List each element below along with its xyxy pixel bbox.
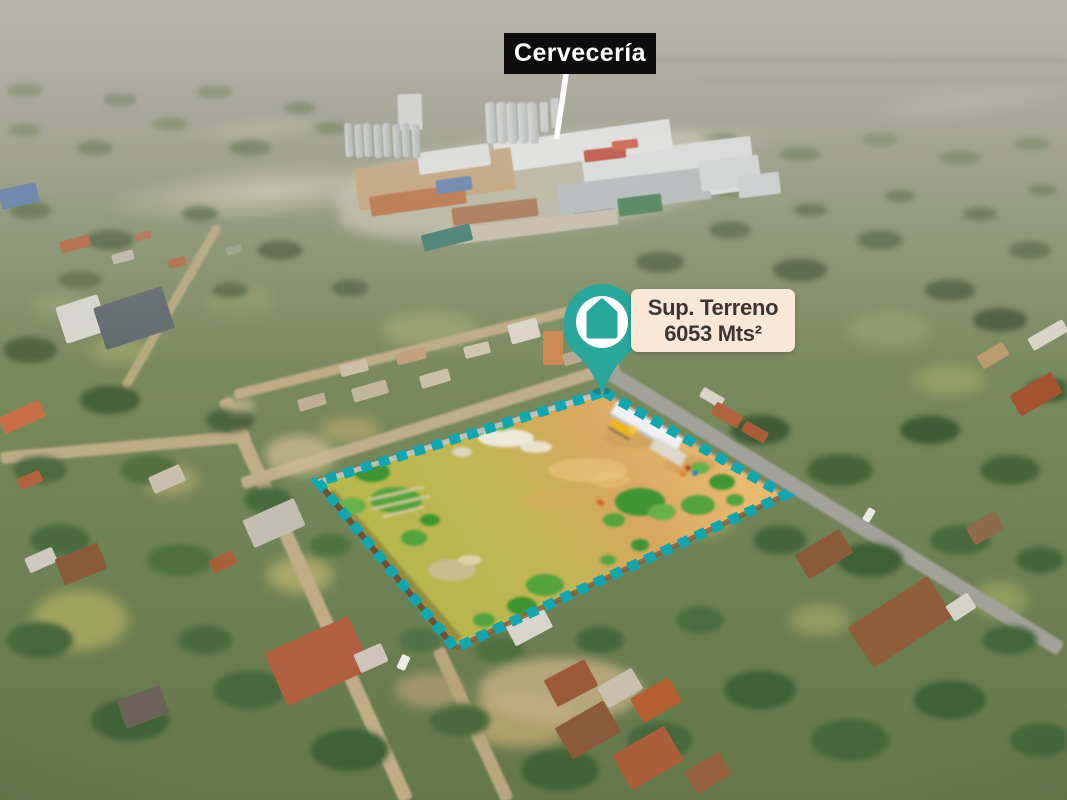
aerial-photo: Cervecería Sup. Terreno 6053 Mts² bbox=[0, 0, 1067, 800]
plot-callout-area: 6053 Mts² bbox=[664, 321, 762, 347]
plot-callout-title: Sup. Terreno bbox=[648, 295, 778, 321]
vignette bbox=[0, 0, 1067, 800]
factory-callout-label: Cervecería bbox=[514, 39, 646, 68]
factory-callout: Cervecería bbox=[504, 33, 656, 74]
plot-callout: Sup. Terreno 6053 Mts² bbox=[631, 289, 795, 352]
